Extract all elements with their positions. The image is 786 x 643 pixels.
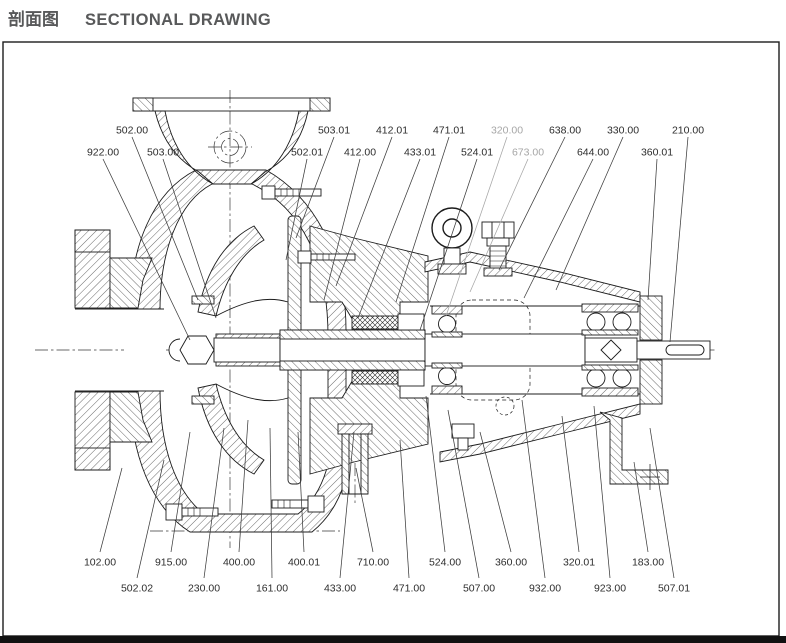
- part-label-503.00: 503.00: [147, 147, 179, 159]
- ball-bearing: [587, 313, 605, 331]
- part-label-400.01: 400.01: [288, 557, 320, 569]
- part-label-320.01: 320.01: [563, 557, 595, 569]
- part-label-471.01: 471.01: [433, 125, 465, 137]
- leader-line: [562, 416, 579, 552]
- leader-line: [204, 428, 224, 578]
- leader-line: [594, 406, 610, 578]
- part-label-507.01: 507.01: [658, 583, 690, 595]
- gland-follower: [398, 314, 424, 330]
- part-label-433.01: 433.01: [404, 147, 436, 159]
- ball-bearing: [613, 369, 631, 387]
- leader-line: [426, 396, 445, 552]
- part-label-360.00: 360.00: [495, 557, 527, 569]
- leader-line: [400, 440, 409, 578]
- part-label-400.00: 400.00: [223, 557, 255, 569]
- ball-bearing: [439, 368, 456, 385]
- ball-bearing: [613, 313, 631, 331]
- part-label-502.00: 502.00: [116, 125, 148, 137]
- leader-line: [420, 159, 477, 330]
- leader-line: [648, 159, 657, 300]
- casing-wear-ring-lower: [192, 396, 214, 404]
- impeller-nut-cap: [169, 339, 180, 361]
- part-label-923.00: 923.00: [594, 583, 626, 595]
- foot-stud: [452, 424, 474, 438]
- part-label-360.01: 360.01: [641, 147, 673, 159]
- part-label-210.00: 210.00: [672, 125, 704, 137]
- part-label-102.00: 102.00: [84, 557, 116, 569]
- part-label-915.00: 915.00: [155, 557, 187, 569]
- sectional-drawing: 502.00503.01412.01471.01320.00638.00330.…: [0, 0, 786, 643]
- part-label-502.02: 502.02: [121, 583, 153, 595]
- leader-line: [522, 400, 545, 578]
- part-label-433.00: 433.00: [324, 583, 356, 595]
- impeller-vane: [216, 299, 288, 316]
- ball-bearing: [587, 369, 605, 387]
- part-label-644.00: 644.00: [577, 147, 609, 159]
- part-label-932.00: 932.00: [529, 583, 561, 595]
- part-label-183.00: 183.00: [632, 557, 664, 569]
- part-label-412.00: 412.00: [344, 147, 376, 159]
- shaft-sleeve-lower: [280, 361, 425, 370]
- leader-line: [650, 428, 674, 578]
- leader-line: [100, 468, 122, 552]
- part-label-673.00: 673.00: [512, 147, 544, 159]
- part-label-503.01: 503.01: [318, 125, 350, 137]
- part-label-330.00: 330.00: [607, 125, 639, 137]
- part-label-502.01: 502.01: [291, 147, 323, 159]
- part-label-230.00: 230.00: [188, 583, 220, 595]
- eyebolt: [432, 208, 472, 274]
- part-label-471.00: 471.00: [393, 583, 425, 595]
- part-label-638.00: 638.00: [549, 125, 581, 137]
- leader-line: [670, 137, 688, 342]
- gland-follower-lower: [398, 370, 424, 386]
- part-label-524.00: 524.00: [429, 557, 461, 569]
- part-label-412.01: 412.01: [376, 125, 408, 137]
- part-label-320.00: 320.00: [491, 125, 523, 137]
- shaft-sleeve: [280, 330, 425, 339]
- ball-bearing: [439, 316, 456, 333]
- impeller-vane-lower: [216, 384, 288, 401]
- part-label-922.00: 922.00: [87, 147, 119, 159]
- impeller-nut: [180, 336, 214, 364]
- part-label-507.00: 507.00: [463, 583, 495, 595]
- part-label-710.00: 710.00: [357, 557, 389, 569]
- part-label-524.01: 524.01: [461, 147, 493, 159]
- shaft-keyway: [666, 345, 704, 355]
- part-label-161.00: 161.00: [256, 583, 288, 595]
